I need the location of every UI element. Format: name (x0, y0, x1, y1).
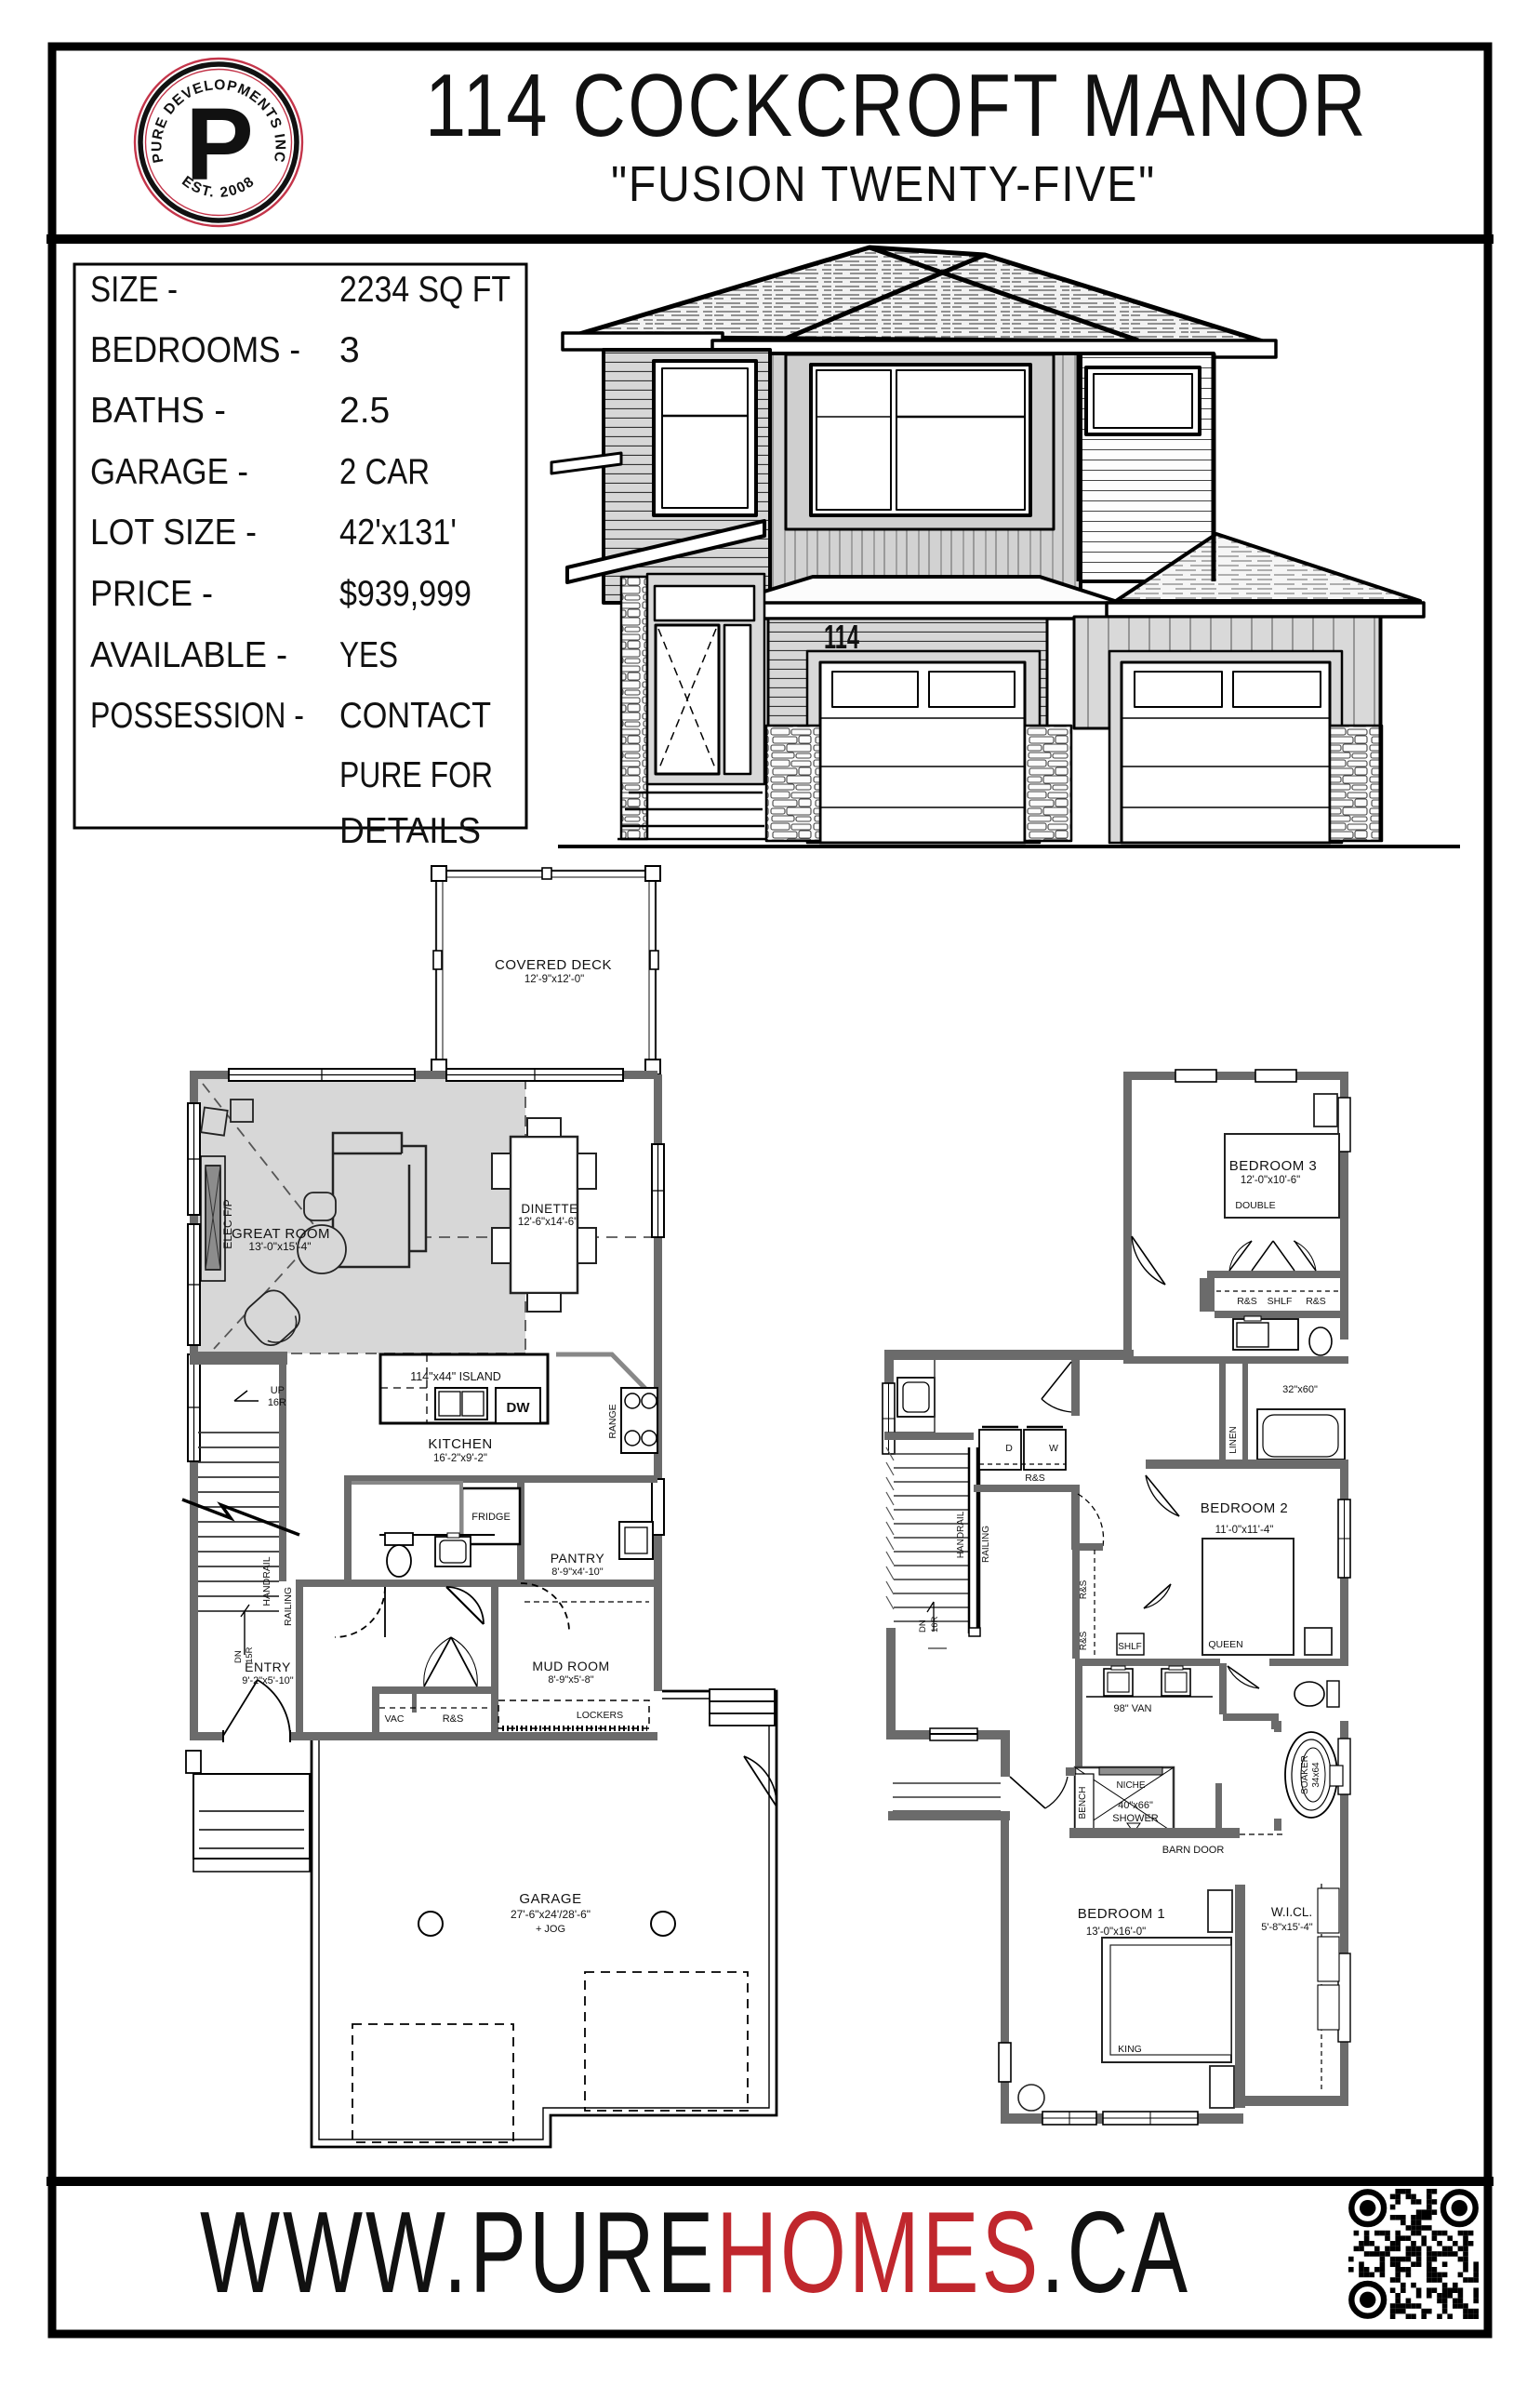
svg-text:SHOWER: SHOWER (1112, 1813, 1159, 1824)
svg-text:WWW.PUREHOMES.CA: WWW.PUREHOMES.CA (200, 2189, 1190, 2317)
svg-text:KING: KING (1118, 2044, 1142, 2055)
svg-text:114 COCKCROFT MANOR: 114 COCKCROFT MANOR (425, 56, 1368, 155)
svg-text:HANDRAIL: HANDRAIL (261, 1556, 272, 1606)
svg-text:12'-9"x12'-0": 12'-9"x12'-0" (524, 974, 584, 985)
svg-text:42'x131': 42'x131' (339, 513, 457, 553)
svg-text:SHLF: SHLF (1118, 1642, 1142, 1652)
svg-text:16R: 16R (930, 1616, 940, 1633)
svg-text:GARAGE: GARAGE (519, 1891, 581, 1907)
svg-text:SHLF: SHLF (1268, 1296, 1293, 1307)
svg-text:YES: YES (339, 635, 398, 675)
svg-text:15R: 15R (245, 1646, 255, 1663)
svg-text:98" VAN: 98" VAN (1114, 1703, 1152, 1714)
svg-text:HANDRAIL: HANDRAIL (956, 1511, 966, 1558)
svg-text:PANTRY: PANTRY (551, 1551, 605, 1566)
svg-text:BEDROOM 3: BEDROOM 3 (1229, 1158, 1318, 1174)
svg-text:PURE FOR: PURE FOR (339, 755, 493, 795)
svg-text:5'-8"x15'-4": 5'-8"x15'-4" (1261, 1922, 1313, 1933)
svg-text:R&S: R&S (1079, 1631, 1089, 1650)
svg-text:13'-0"x15'-4": 13'-0"x15'-4" (248, 1240, 311, 1253)
svg-text:R&S: R&S (1079, 1580, 1089, 1599)
svg-text:KITCHEN: KITCHEN (428, 1436, 492, 1452)
svg-text:16R: 16R (268, 1397, 286, 1408)
svg-text:40"x66": 40"x66" (1118, 1800, 1153, 1811)
svg-text:32"x60": 32"x60" (1282, 1384, 1318, 1395)
svg-text:DINETTE: DINETTE (521, 1202, 577, 1216)
svg-text:R&S: R&S (1306, 1296, 1326, 1307)
svg-text:+ JOG: + JOG (536, 1924, 565, 1935)
svg-text:W.I.CL.: W.I.CL. (1271, 1905, 1312, 1919)
svg-text:BEDROOMS -: BEDROOMS - (90, 330, 300, 370)
svg-text:VAC: VAC (385, 1713, 405, 1725)
svg-text:BATHS -: BATHS - (90, 391, 226, 431)
svg-text:$939,999: $939,999 (339, 574, 471, 614)
svg-text:R&S: R&S (1025, 1473, 1045, 1484)
svg-text:RAILING: RAILING (981, 1526, 991, 1563)
svg-text:LINEN: LINEN (1228, 1426, 1239, 1453)
svg-text:BENCH: BENCH (1078, 1786, 1088, 1819)
svg-text:8'-9"x4'-10": 8'-9"x4'-10" (551, 1566, 604, 1578)
svg-text:12'-6"x14'-6": 12'-6"x14'-6" (518, 1217, 577, 1228)
svg-text:2 CAR: 2 CAR (339, 452, 430, 492)
svg-text:COVERED DECK: COVERED DECK (495, 957, 612, 973)
svg-text:13'-0"x16'-0": 13'-0"x16'-0" (1086, 1926, 1146, 1938)
svg-text:PRICE -: PRICE - (90, 574, 213, 614)
svg-text:11'-0"x11'-4": 11'-0"x11'-4" (1215, 1525, 1274, 1536)
svg-text:27'-6"x24'/28'-6": 27'-6"x24'/28'-6" (511, 1908, 591, 1921)
svg-text:8'-9"x5'-8": 8'-9"x5'-8" (548, 1674, 593, 1686)
svg-text:SIZE -: SIZE - (90, 270, 178, 310)
svg-text:AVAILABLE -: AVAILABLE - (90, 635, 287, 675)
svg-text:114"x44" ISLAND: 114"x44" ISLAND (410, 1370, 501, 1383)
svg-text:CONTACT: CONTACT (339, 696, 491, 736)
svg-text:2.5: 2.5 (339, 391, 390, 431)
svg-text:POSSESSION -: POSSESSION - (90, 696, 304, 736)
svg-text:DN: DN (233, 1650, 244, 1663)
svg-text:3: 3 (339, 330, 360, 370)
svg-text:RAILING: RAILING (283, 1587, 294, 1626)
svg-text:GARAGE -: GARAGE - (90, 452, 248, 492)
svg-text:"FUSION TWENTY-FIVE": "FUSION TWENTY-FIVE" (611, 156, 1156, 212)
svg-text:BEDROOM 2: BEDROOM 2 (1201, 1500, 1289, 1516)
svg-text:D: D (1005, 1443, 1013, 1454)
svg-text:R&S: R&S (1237, 1296, 1257, 1307)
svg-text:NICHE: NICHE (1116, 1780, 1145, 1791)
svg-text:QUEEN: QUEEN (1208, 1639, 1242, 1650)
svg-text:UP: UP (271, 1385, 285, 1396)
svg-text:DW: DW (507, 1400, 531, 1416)
svg-text:16'-2"x9'-2": 16'-2"x9'-2" (433, 1453, 487, 1464)
svg-text:RANGE: RANGE (607, 1404, 618, 1438)
svg-text:BARN DOOR: BARN DOOR (1162, 1845, 1225, 1856)
svg-text:W: W (1049, 1443, 1058, 1454)
svg-text:BEDROOM 1: BEDROOM 1 (1078, 1906, 1166, 1922)
svg-text:LOCKERS: LOCKERS (577, 1710, 623, 1721)
svg-text:MUD ROOM: MUD ROOM (532, 1659, 609, 1673)
svg-text:34x64: 34x64 (1311, 1762, 1321, 1788)
svg-text:12'-0"x10'-6": 12'-0"x10'-6" (1241, 1175, 1300, 1186)
svg-text:DETAILS: DETAILS (339, 811, 481, 851)
svg-text:2234 SQ FT: 2234 SQ FT (339, 270, 511, 310)
svg-text:DN: DN (918, 1620, 928, 1633)
svg-text:9'-2"x5'-10": 9'-2"x5'-10" (242, 1675, 294, 1686)
svg-text:DOUBLE: DOUBLE (1235, 1200, 1275, 1211)
svg-text:SOAKER: SOAKER (1300, 1755, 1310, 1794)
svg-text:LOT SIZE -: LOT SIZE - (90, 513, 257, 553)
svg-text:FRIDGE: FRIDGE (471, 1512, 511, 1523)
svg-text:R&S: R&S (443, 1713, 464, 1725)
